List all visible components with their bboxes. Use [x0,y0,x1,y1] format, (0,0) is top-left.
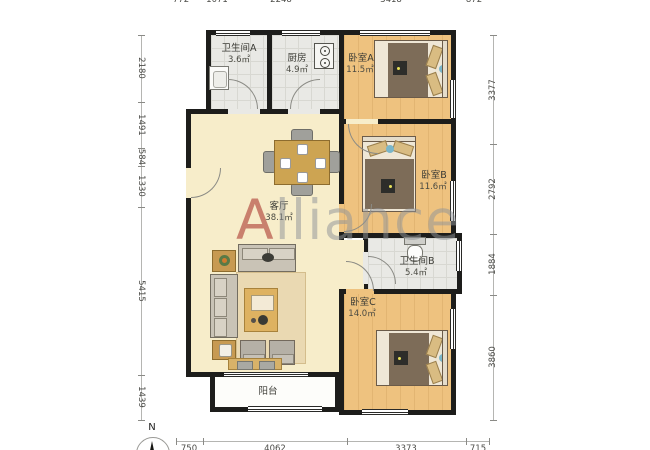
side-table-icon [212,340,236,360]
dim-right-1: 2792 [488,167,498,211]
kitchen-door-gap [288,109,320,114]
dim-line-bottom [176,441,490,442]
label-bedroom-c: 卧室C [350,298,376,308]
window-bedroom-a [360,30,430,36]
compass-icon [136,437,170,450]
label-living: 客厅 [269,202,288,212]
loveseat-icon [238,244,296,272]
dim-left-4: 5415 [136,269,146,313]
dining-table-icon [274,140,330,185]
label-kitchen: 厨房 [287,54,306,64]
label-bedroom-a: 卧室A [348,54,374,64]
window-bedroom-c-right [450,309,456,349]
window-bedroom-b-right [450,181,456,221]
dim-bottom-0: 750 [167,444,211,450]
window-balcony-door [224,372,308,377]
bed-c-icon [376,330,448,386]
label-bathroom-b: 卫生间B [399,257,434,267]
bathroom-a-door-gap [228,109,260,114]
washbasin-icon [209,66,229,90]
dim-top-3: 3418 [369,0,413,5]
label-bedroom-b: 卧室B [421,171,447,181]
dim-left-5: 1439 [136,375,146,419]
dim-top-2: 2248 [259,0,303,5]
area-kitchen: 4.9㎡ [286,66,308,75]
window-bathroom-a [216,30,250,36]
area-bedroom-a: 11.5㎡ [346,66,373,75]
window-bedroom-c-bottom [362,409,408,415]
bed-a-icon [374,40,448,98]
dim-left-0: 2180 [136,46,146,90]
window-balcony-rail [248,406,322,412]
coffee-table-icon [244,288,278,332]
side-table-icon [212,250,236,272]
area-bathroom-a: 3.6㎡ [228,56,250,65]
stove-icon [314,43,334,69]
area-living: 38.1㎡ [265,214,292,223]
dim-right-3: 3860 [488,335,498,379]
dim-line-left [141,35,142,420]
window-bedroom-a-right [450,80,456,118]
window-bathroom-b-right [456,241,462,271]
sofa-icon [210,274,238,338]
dim-top-4: 872 [452,0,496,5]
dim-bottom-1: 4062 [253,444,297,450]
compass-north-label: N [140,422,164,433]
floor-plan: 卫生间A 3.6㎡ 厨房 4.9㎡ 卧室A 11.5㎡ 卧室B 11.6㎡ 卫生… [0,0,650,450]
window-kitchen [282,30,320,36]
area-bedroom-b: 11.6㎡ [419,183,446,192]
area-bedroom-c: 14.0㎡ [348,310,375,319]
dim-bottom-3: 715 [456,444,500,450]
tv-console-icon [228,358,282,370]
label-balcony: 阳台 [258,387,277,397]
dim-right-0: 3377 [488,68,498,112]
label-bathroom-a: 卫生间A [222,44,257,54]
area-bathroom-b: 5.4㎡ [405,269,427,278]
dim-bottom-2: 3373 [384,444,428,450]
dim-top-1: 1071 [195,0,239,5]
dim-right-2: 1884 [488,242,498,286]
dim-left-3: 1330 [136,164,146,208]
